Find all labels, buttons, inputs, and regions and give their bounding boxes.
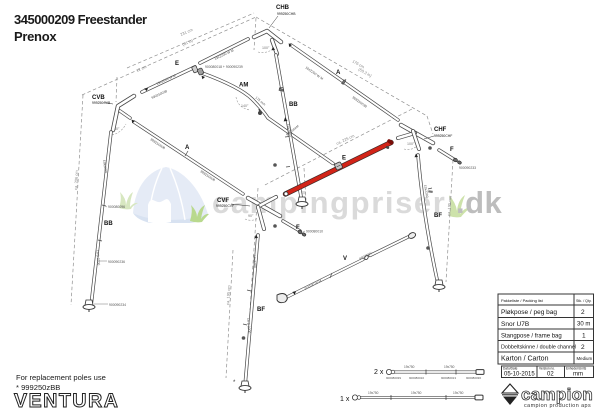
svg-text:CHB: CHB (276, 5, 290, 11)
svg-text:BB: BB (104, 221, 113, 227)
svg-text:900080018 + 900090239: 900080018 + 900090239 (205, 65, 243, 69)
svg-text:900080010: 900080010 (306, 230, 323, 234)
svg-text:1 x: 1 x (340, 396, 350, 403)
svg-text:100°: 100° (262, 46, 270, 50)
svg-text:Version no.: Version no. (539, 367, 555, 371)
svg-text:*: * (233, 380, 236, 386)
svg-text:19x750: 19x750 (411, 391, 422, 395)
svg-text:campion: campion (521, 385, 593, 404)
svg-text:Snor U7B: Snor U7B (501, 321, 529, 328)
svg-text:900090236: 900090236 (108, 260, 125, 264)
svg-text:A: A (336, 70, 341, 76)
svg-text:campion production aps: campion production aps (524, 403, 591, 409)
svg-text:Dato/Date: Dato/Date (503, 367, 518, 371)
svg-text:BB: BB (289, 102, 298, 108)
svg-text:Pløkpose / peg bag: Pløkpose / peg bag (501, 309, 557, 316)
svg-text:Stk. / Qty.: Stk. / Qty. (576, 299, 592, 303)
svg-text:900090234: 900090234 (109, 303, 126, 307)
svg-text:100°: 100° (407, 142, 415, 146)
svg-text:999250CHF: 999250CHF (434, 134, 452, 138)
svg-text:999250CHB: 999250CHB (277, 12, 296, 16)
svg-text:345000209 Freestander: 345000209 Freestander (14, 12, 147, 27)
svg-text:Pakkeliste / Packing list: Pakkeliste / Packing list (501, 298, 544, 303)
svg-text:Medium: Medium (577, 356, 593, 361)
svg-text:30 m: 30 m (577, 322, 590, 328)
svg-text:19x750: 19x750 (404, 365, 415, 369)
svg-text:F: F (450, 147, 454, 153)
svg-text:E: E (342, 156, 346, 162)
svg-text:BF: BF (257, 307, 265, 313)
svg-text:02: 02 (547, 372, 554, 378)
svg-text:CHF: CHF (434, 127, 447, 133)
svg-text:19x750: 19x750 (453, 391, 464, 395)
svg-text:Dobbeltskinne / double channel: Dobbeltskinne / double channel (501, 345, 576, 351)
svg-text:2: 2 (581, 344, 585, 351)
svg-text:900080013: 900080013 (441, 376, 456, 380)
svg-text:ca. 195 cm: ca. 195 cm (225, 285, 231, 306)
svg-text:2 x: 2 x (374, 369, 384, 376)
svg-text:90°: 90° (248, 214, 254, 218)
svg-text:19x750: 19x750 (444, 365, 455, 369)
svg-text:900080036: 900080036 (466, 376, 481, 380)
svg-text:999250CVF: 999250CVF (216, 204, 234, 208)
svg-text:19x2200 W M: 19x2200 W M (156, 73, 177, 86)
svg-text:E: E (175, 61, 179, 67)
svg-text:19x750: 19x750 (368, 391, 379, 395)
svg-text:VENTURA: VENTURA (14, 390, 119, 412)
svg-text:19 B 2200: 19 B 2200 (246, 318, 251, 334)
svg-text:900080010: 900080010 (409, 376, 424, 380)
svg-text:900080096: 900080096 (108, 205, 125, 209)
svg-text:2x1100 W M: 2x1100 W M (304, 279, 323, 291)
svg-text:900090233: 900090233 (459, 166, 476, 170)
svg-text:AM: AM (239, 83, 248, 89)
svg-text:140°: 140° (241, 104, 249, 108)
svg-text:V: V (343, 256, 347, 262)
svg-text:BF: BF (434, 213, 442, 219)
svg-text:ca. 206 cm: ca. 206 cm (73, 170, 79, 190)
svg-text:.dk: .dk (456, 185, 503, 220)
svg-text:A: A (185, 145, 190, 151)
svg-text:19x2200: 19x2200 (102, 160, 108, 174)
svg-text:Stangpose / frame bag: Stangpose / frame bag (501, 334, 562, 340)
svg-text:900080039: 900080039 (386, 376, 401, 380)
svg-text:05-10-2015: 05-10-2015 (504, 372, 535, 378)
svg-text:For replacement poles use: For replacement poles use (16, 373, 106, 382)
svg-text:12 cm: 12 cm (135, 64, 148, 73)
svg-text:1: 1 (582, 333, 586, 340)
svg-text:Karton / Carton: Karton / Carton (501, 356, 549, 363)
svg-text:2: 2 (581, 309, 585, 316)
svg-text:mm: mm (573, 372, 583, 378)
svg-text:999250038: 999250038 (151, 89, 168, 100)
svg-text:Prenox: Prenox (14, 29, 57, 44)
svg-text:Enheder/Units: Enheder/Units (566, 367, 587, 371)
svg-text:231 cm: 231 cm (179, 27, 194, 37)
svg-text:F: F (296, 225, 300, 231)
svg-text:(69.3 in): (69.3 in) (358, 67, 374, 79)
